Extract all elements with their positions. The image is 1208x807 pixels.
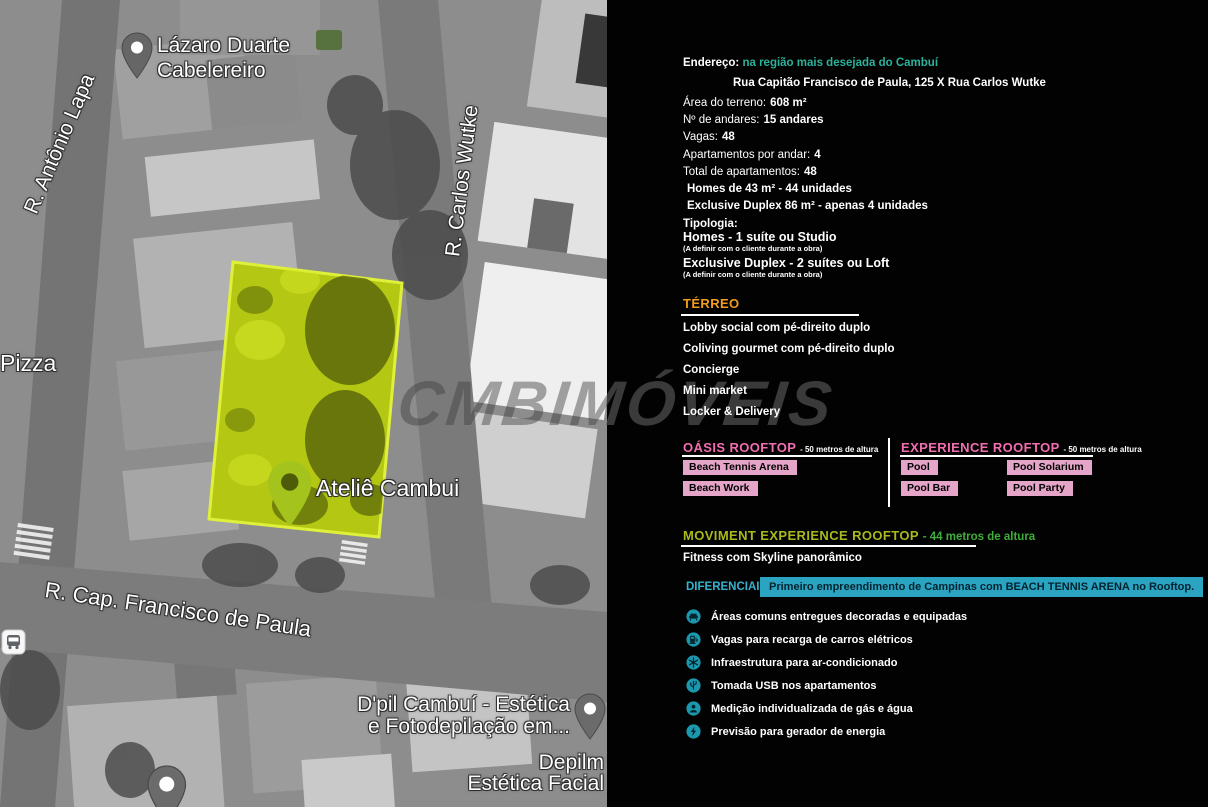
terreo-amenity: Concierge [683, 363, 894, 384]
detail-row: Total de apartamentos:48 [683, 164, 928, 181]
oasis-rooftop-subtitle: - 50 metros de altura [800, 445, 878, 454]
moviment-rooftop-subtitle: - 44 metros de altura [923, 531, 1035, 543]
detail-row: Nº de andares:15 andares [683, 112, 928, 129]
address-line1: Endereço: na região mais desejada do Cam… [683, 57, 938, 69]
amenity-badge: Pool Party [1007, 481, 1073, 496]
depilm-pin[interactable] [148, 766, 186, 807]
poi-label-atelie[interactable]: Ateliê Cambui [316, 475, 459, 502]
screenshot-root: CMBIMÓVEIS Lázaro Duarte Cabelereiro R. … [0, 0, 1208, 807]
sofa-icon [686, 609, 701, 624]
crosswalk-right [339, 540, 368, 565]
oasis-underline [682, 455, 872, 457]
address-highlight: na região mais desejada do Cambuí [742, 57, 938, 69]
amenity-badge: Pool Bar [901, 481, 958, 496]
moviment-amenity: Fitness com Skyline panorâmico [683, 552, 862, 564]
usb-icon [686, 678, 701, 693]
tipologia-note: (A definir com o cliente durante a obra) [683, 244, 822, 253]
poi-label-dpil[interactable]: D'pil Cambuí - Estética e Fotodepilação … [330, 694, 570, 738]
feature-row: Tomada USB nos apartamentos [686, 674, 967, 697]
info-panel: CMBIMÓVEIS Endereço: na região mais dese… [607, 0, 1208, 807]
diferenciais-highlight-badge: Primeiro empreendimento de Campinas com … [760, 577, 1203, 597]
feature-row: Áreas comuns entregues decoradas e equip… [686, 605, 967, 628]
amenity-badge: Beach Work [683, 481, 758, 496]
snowflake-icon [686, 655, 701, 670]
rooftop-columns-divider [888, 438, 890, 507]
detail-row: Exclusive Duplex 86 m² - apenas 4 unidad… [683, 198, 928, 215]
amenity-badge: Pool Solarium [1007, 460, 1092, 475]
features-list: Áreas comuns entregues decoradas e equip… [686, 605, 967, 743]
address-label: Endereço: [683, 57, 739, 69]
diferenciais-label: DIFERENCIAIS [686, 581, 767, 593]
feature-row: Vagas para recarga de carros elétricos [686, 628, 967, 651]
terreo-amenity: Lobby social com pé-direito duplo [683, 321, 894, 342]
terreo-underline [681, 314, 859, 316]
terreo-amenity: Locker & Delivery [683, 405, 894, 426]
amenity-badge: Beach Tennis Arena [683, 460, 797, 475]
experience-underline [900, 455, 1093, 457]
satellite-map[interactable]: CMBIMÓVEIS Lázaro Duarte Cabelereiro R. … [0, 0, 607, 807]
tipologia-title: Tipologia: [683, 218, 738, 230]
ev-charger-icon [686, 632, 701, 647]
feature-row: Medição individualizada de gás e água [686, 697, 967, 720]
experience-rooftop-subtitle: - 50 metros de altura [1063, 445, 1141, 454]
detail-row: Homes de 43 m² - 44 unidades [683, 181, 928, 198]
amenity-badge: Pool [901, 460, 938, 475]
tipologia-item: Homes - 1 suíte ou Studio [683, 230, 837, 244]
terreo-amenity: Coliving gourmet com pé-direito duplo [683, 342, 894, 363]
satellite-map-canvas [0, 0, 607, 807]
property-details-list: Área do terreno:608 m² Nº de andares:15 … [683, 95, 928, 215]
tipologia-item: Exclusive Duplex - 2 suítes ou Loft [683, 256, 889, 270]
oasis-rooftop-title: OÁSIS ROOFTOP - 50 metros de altura [683, 440, 878, 455]
experience-rooftop-title: EXPERIENCE ROOFTOP - 50 metros de altura [901, 440, 1142, 455]
gas-water-meter-icon [686, 701, 701, 716]
detail-row: Vagas:48 [683, 129, 928, 146]
address-line2: Rua Capitão Francisco de Paula, 125 X Ru… [733, 77, 1046, 89]
energy-generator-icon [686, 724, 701, 739]
poi-label-lazaro[interactable]: Lázaro Duarte Cabelereiro [157, 33, 290, 83]
moviment-underline [681, 545, 976, 547]
bus-stop-icon[interactable] [2, 630, 25, 654]
poi-label-pizza[interactable]: Pizza [0, 350, 56, 377]
terreo-amenity: Mini market [683, 384, 894, 405]
tipologia-note: (A definir com o cliente durante a obra) [683, 270, 822, 279]
moviment-rooftop-title: MOVIMENT EXPERIENCE ROOFTOP - 44 metros … [683, 528, 1035, 543]
detail-row: Apartamentos por andar:4 [683, 147, 928, 164]
poi-label-depilm[interactable]: Depilm Estética Facial [420, 752, 604, 794]
terreo-amenities-list: Lobby social com pé-direito duplo Colivi… [683, 321, 894, 426]
dpil-pin[interactable] [575, 694, 605, 739]
feature-row: Previsão para gerador de energia [686, 720, 967, 743]
feature-row: Infraestrutura para ar-condicionado [686, 651, 967, 674]
detail-row: Área do terreno:608 m² [683, 95, 928, 112]
terreo-section-title: TÉRREO [683, 296, 740, 311]
